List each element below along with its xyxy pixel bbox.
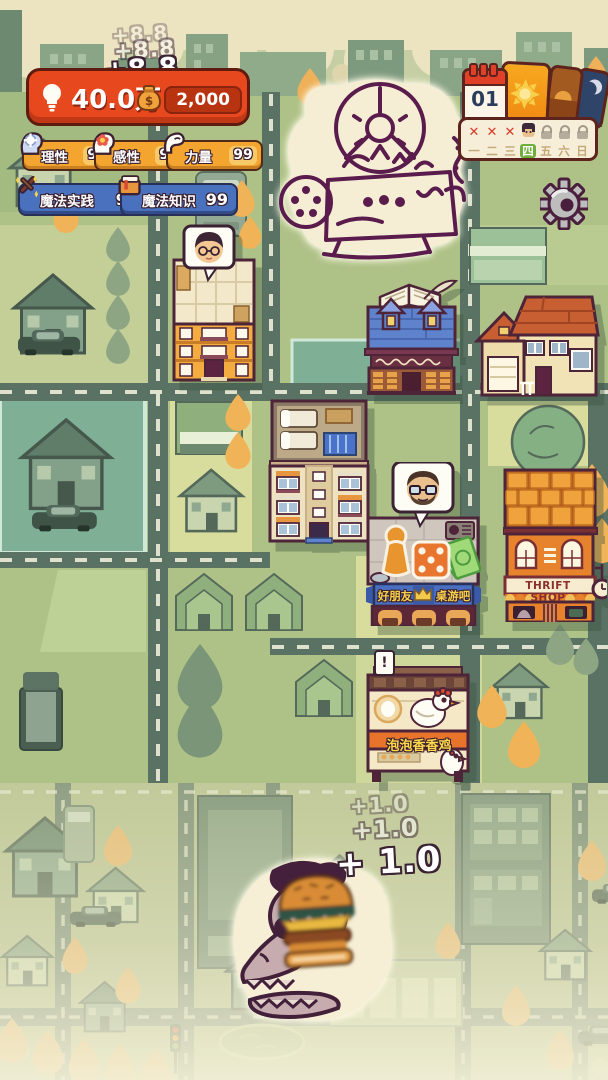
magic-wand-icon	[13, 172, 41, 204]
moon-icon	[580, 80, 597, 97]
weekday-label: 五	[540, 144, 552, 158]
stat-value: 99	[229, 146, 257, 165]
stat-value: 99	[198, 190, 228, 209]
apartment-art	[172, 224, 258, 382]
board-game-bar-sign-left: 好朋友	[374, 588, 416, 604]
day-complete-mark: ✕	[505, 125, 516, 140]
stat-badge-strength[interactable]: 力量 99	[166, 140, 263, 171]
calendar-date: 01	[465, 87, 505, 111]
lock-icon	[577, 131, 588, 139]
week-days-row: 一 二 三 四 五 六 日	[465, 141, 591, 160]
weekday-label: 日	[576, 144, 588, 158]
thrift-shop-sign: THRIFT SHOP	[506, 580, 590, 604]
weekday-label-active: 四	[520, 144, 536, 158]
week-tracker[interactable]: ✕ ✕ ✕ 一 二 三 四 五 六 日	[458, 117, 598, 161]
weekday-label: 二	[486, 144, 498, 158]
building-dorm-apartment[interactable]	[268, 397, 370, 545]
game-screen: 好朋友 桌游吧 THRIFT SHOP 泡泡香香鸡 ! +8.8 +8.8 +8…	[0, 0, 608, 1080]
gear-icon	[540, 176, 588, 230]
calendar-date-widget[interactable]: 01	[462, 68, 508, 124]
bookshop-art	[364, 277, 459, 395]
dorm-art	[268, 397, 370, 545]
stall-alert-bubble[interactable]: !	[374, 650, 395, 676]
stat-label: 魔法知识	[142, 190, 196, 210]
house-art	[474, 289, 601, 399]
stat-label: 感性	[113, 146, 140, 166]
reward-popup: + 1.0	[335, 839, 443, 884]
stat-label: 力量	[185, 146, 212, 166]
strength-icon	[161, 129, 188, 160]
board-game-bar-sign-right: 桌游吧	[432, 588, 474, 604]
speech-bubble-shopkeeper	[393, 462, 453, 526]
sun-icon	[508, 77, 542, 111]
calendar-ring	[469, 63, 478, 77]
money-value: 2,000	[164, 86, 242, 114]
calendar-ring	[479, 63, 488, 77]
projector-doodle-event[interactable]	[268, 74, 472, 260]
weekday-label: 一	[468, 144, 480, 158]
building-bookshop[interactable]	[364, 277, 459, 395]
building-protagonist-apartment[interactable]	[172, 224, 258, 382]
rationality-icon	[17, 129, 44, 160]
magic-book-icon	[115, 172, 143, 204]
lock-icon	[559, 131, 570, 139]
stat-label: 理性	[41, 146, 68, 166]
settings-button[interactable]	[540, 176, 588, 230]
current-day-avatar	[521, 122, 536, 143]
money-bag-icon: $	[136, 84, 162, 116]
sensibility-icon	[89, 129, 116, 160]
day-complete-mark: ✕	[487, 125, 498, 140]
knowledge-icon	[37, 81, 67, 113]
money-chip[interactable]: $ 2,000	[136, 82, 242, 118]
day-complete-mark: ✕	[469, 125, 480, 140]
building-red-roof-house[interactable]	[474, 289, 601, 399]
weekday-label: 三	[504, 144, 516, 158]
week-marks-row: ✕ ✕ ✕	[465, 122, 591, 141]
stat-badge-magic-knowledge[interactable]: 魔法知识 99	[120, 183, 238, 216]
weekday-label: 六	[558, 144, 570, 158]
stat-label: 魔法实践	[40, 190, 94, 210]
projector-doodle-art	[268, 74, 472, 260]
lock-icon	[541, 131, 552, 139]
calendar-ring	[489, 63, 498, 77]
burger-sketch	[276, 874, 358, 968]
chicken-stall-sign: 泡泡香香鸡	[368, 735, 470, 754]
resource-bar[interactable]: 40.0万 $ 2,000	[26, 68, 250, 126]
svg-text:$: $	[145, 94, 153, 108]
